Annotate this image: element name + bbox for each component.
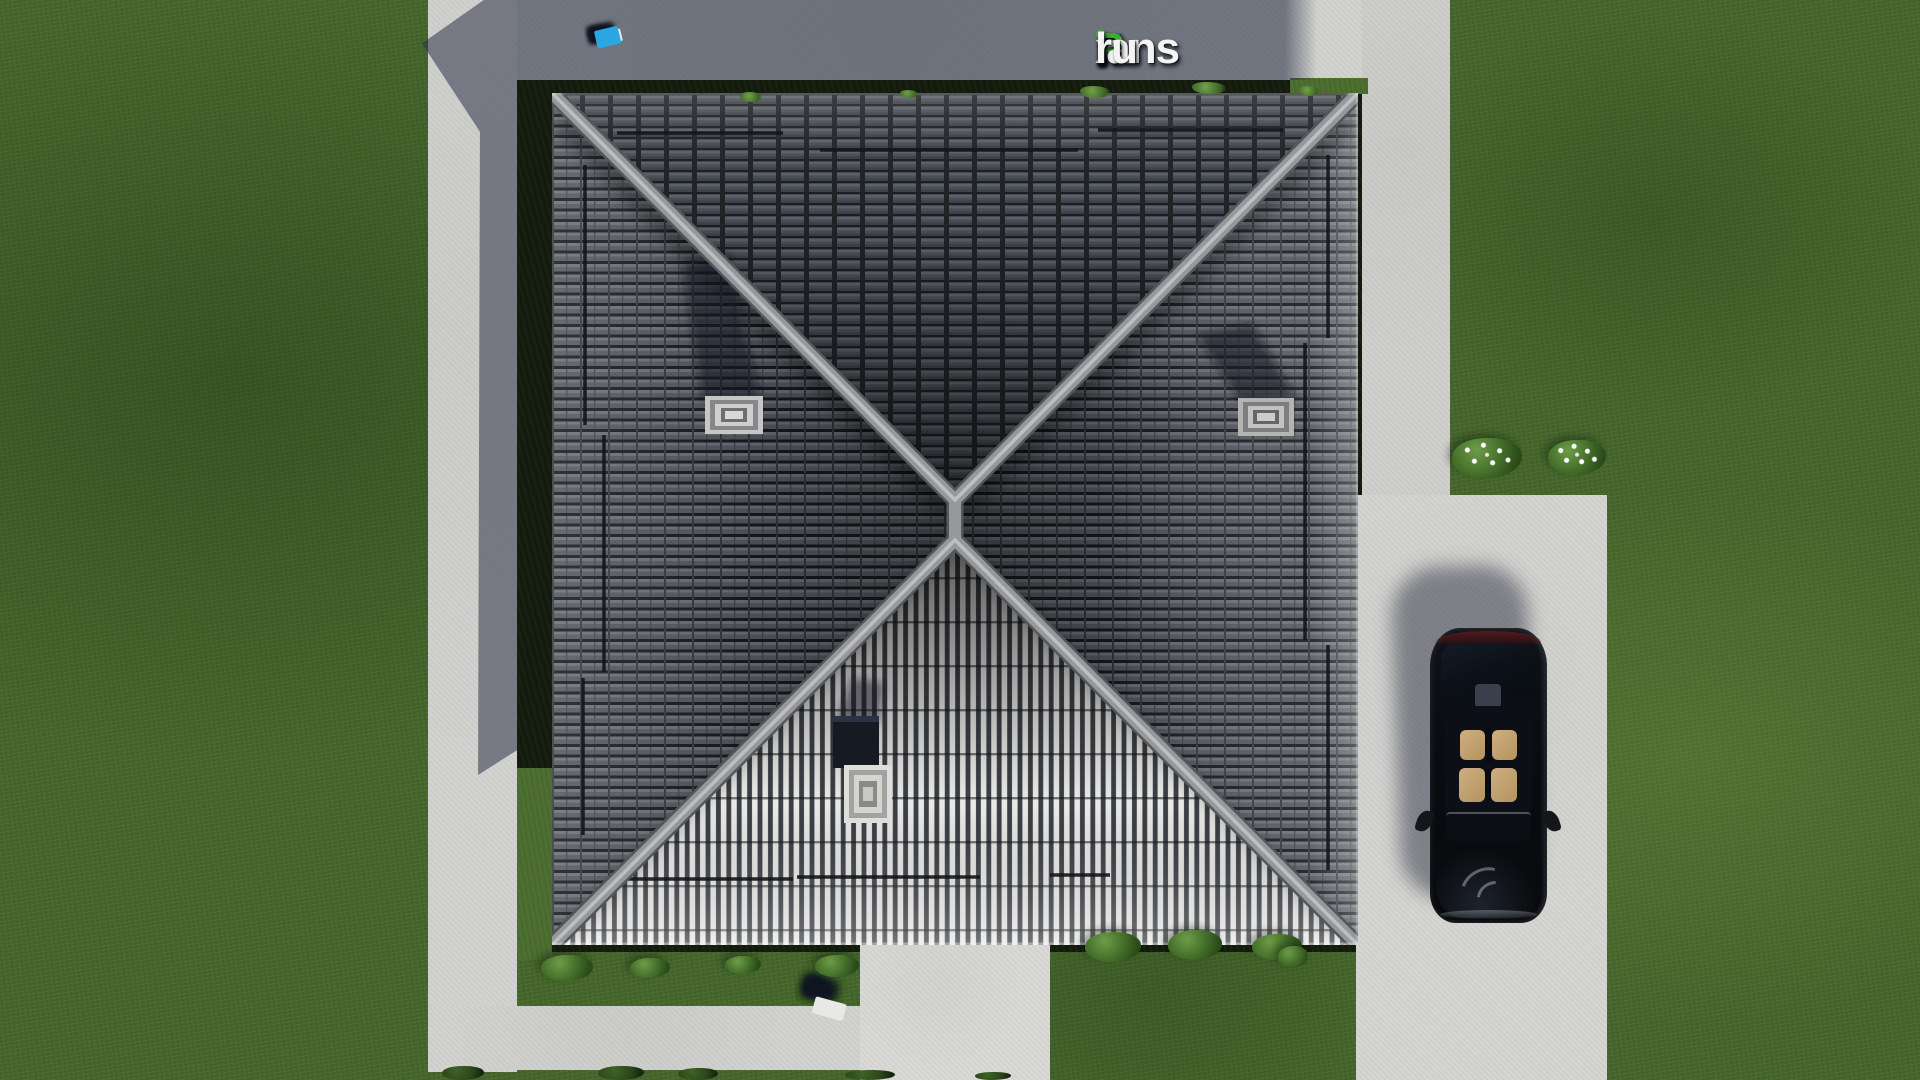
logo-letters-ru: ru [1095, 24, 1137, 74]
front-walkway [860, 938, 1050, 1080]
car-console [1485, 728, 1492, 762]
aerial-render-canvas: FixPlans.ru [0, 0, 1920, 1080]
roof-window-east [1238, 398, 1294, 436]
car-seat [1491, 768, 1517, 802]
roof-window-west [705, 396, 763, 434]
car-console [1485, 770, 1491, 800]
eave-sprig [1080, 86, 1110, 98]
concrete-strip-right [1362, 0, 1450, 500]
car-cabin-glass [1445, 706, 1532, 812]
car-windshield [1446, 812, 1531, 842]
eave-sprig [740, 92, 762, 102]
car-seat [1460, 730, 1485, 760]
eave-sprig [1192, 82, 1226, 94]
car-roof-antenna [1475, 684, 1501, 708]
house-shadow-top [517, 0, 1317, 80]
car-seat [1459, 768, 1485, 802]
lit-grass-strip-left [517, 768, 552, 960]
eave-sprig [900, 90, 918, 98]
black-car [1430, 628, 1547, 923]
hipped-roof [552, 93, 1358, 945]
car-front-trim [1440, 910, 1537, 919]
car-seat [1492, 730, 1517, 760]
eave-sprig [1298, 86, 1320, 96]
car-hood [1436, 842, 1541, 918]
